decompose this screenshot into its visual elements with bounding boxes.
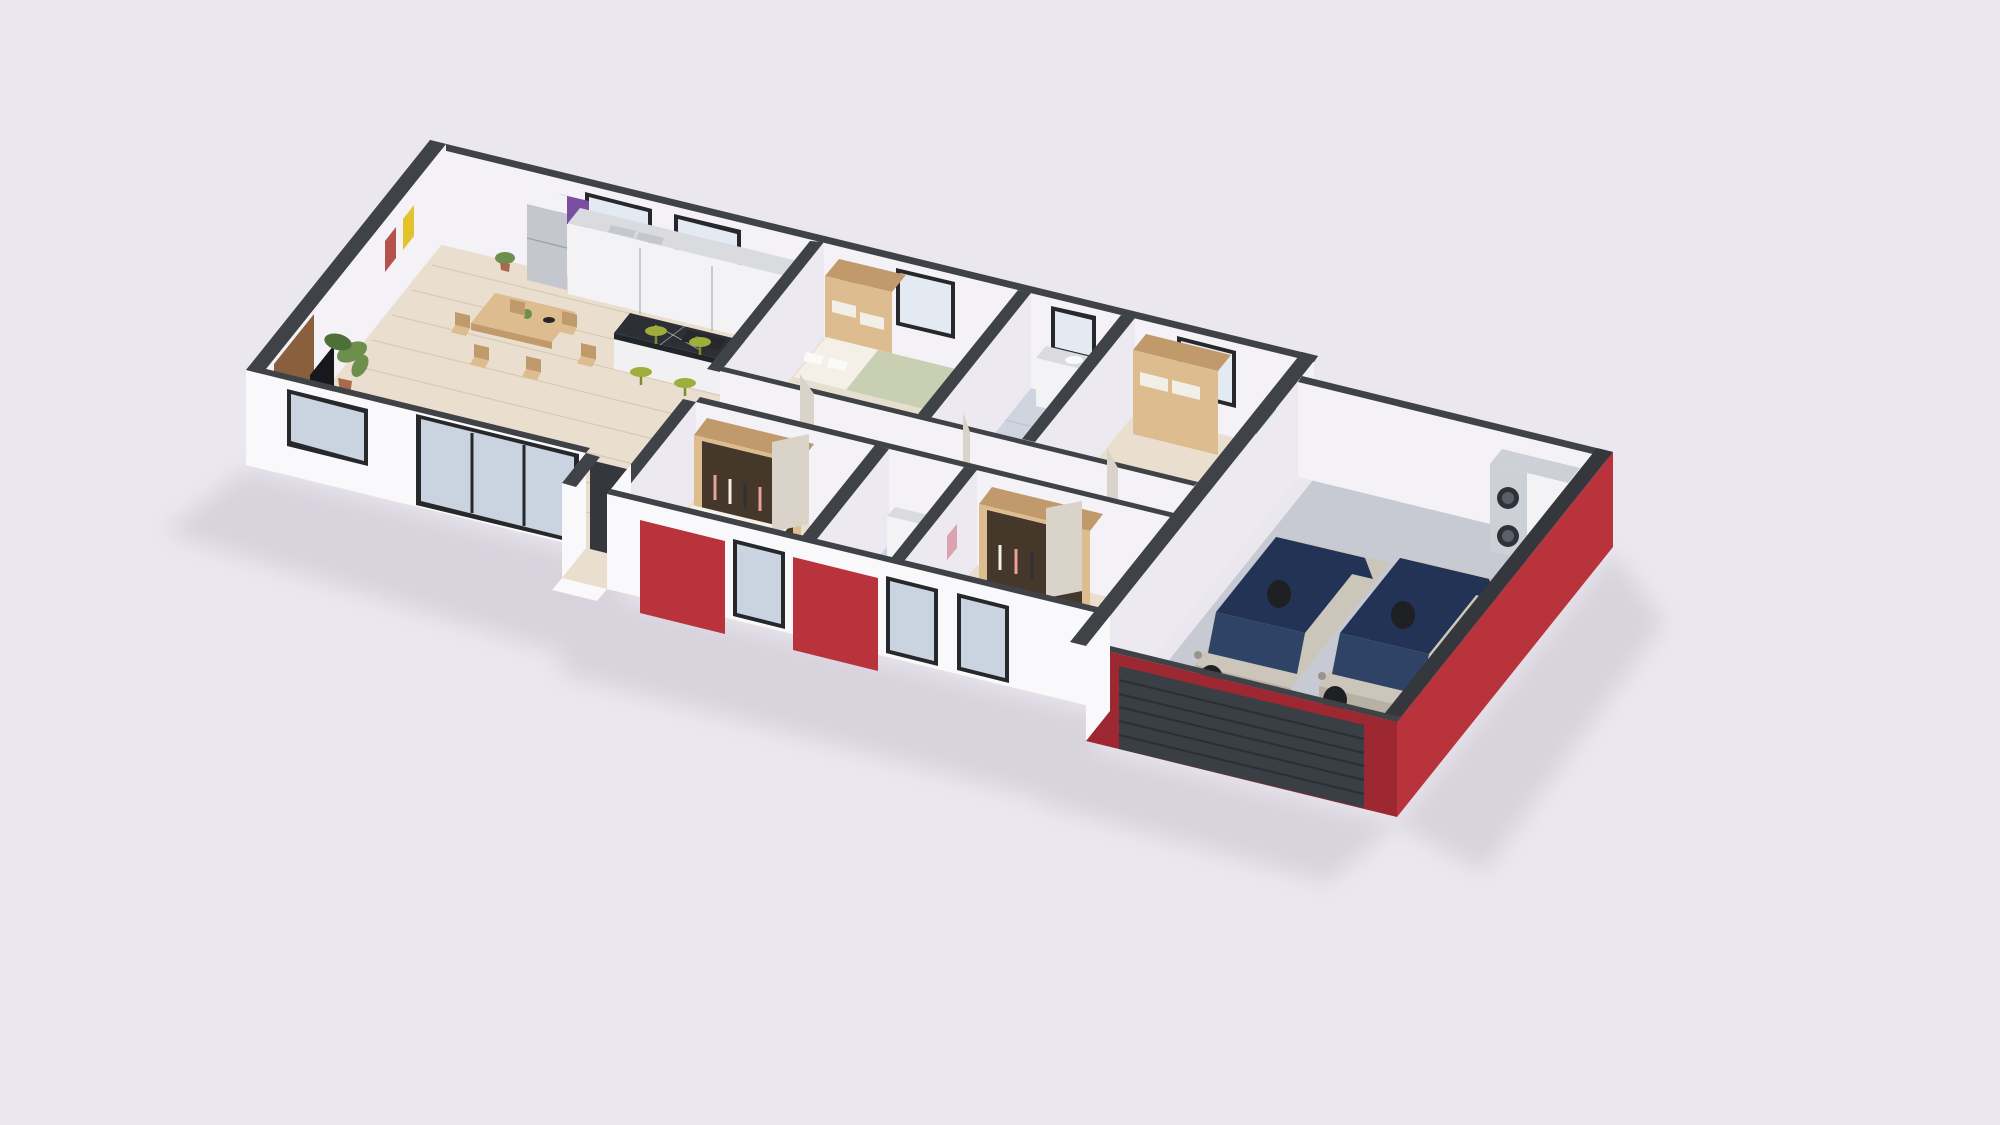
floorplan-render-stage [0,0,2000,1125]
car-wheel [1267,580,1291,608]
corner-plant [495,252,515,264]
door-bedroom-front-right [1046,501,1082,598]
car-mirror [1194,651,1202,659]
wing-window-3-glass [961,598,1005,678]
vanity-sink [1065,356,1083,364]
wing-window-1-glass [737,544,781,624]
dryer-door-glass [1502,492,1514,504]
table-bowl [543,317,555,323]
wing-window-2-glass [890,581,934,661]
isometric-house-svg [0,0,2000,1125]
door-bedroom-front-left [772,434,809,532]
washer-door-glass [1502,530,1514,542]
